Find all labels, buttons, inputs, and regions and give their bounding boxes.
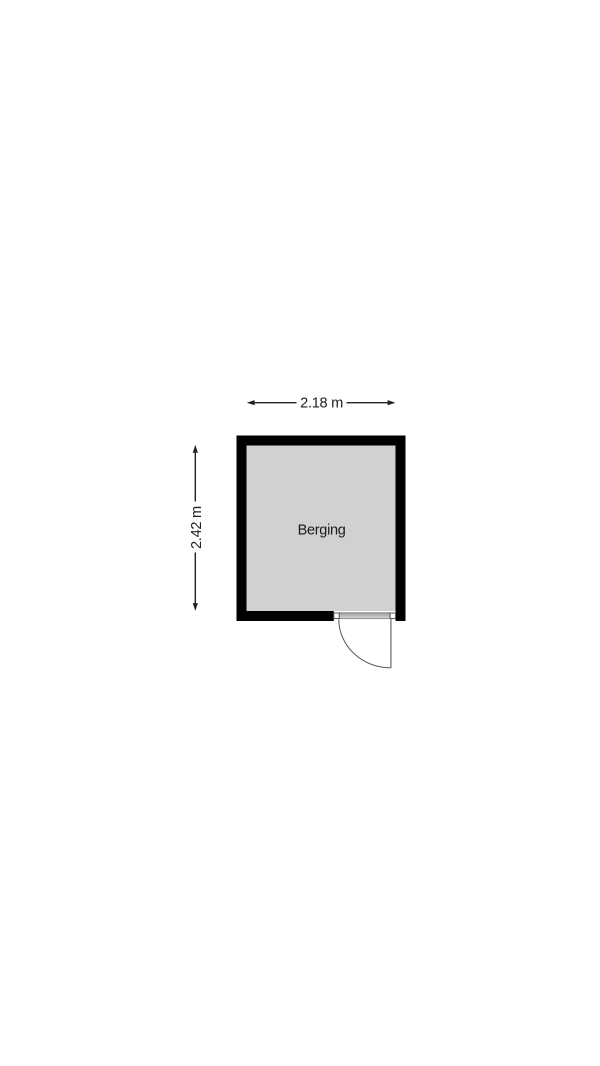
- svg-text:Berging: Berging: [298, 523, 346, 539]
- svg-text:2.18 m: 2.18 m: [300, 396, 343, 412]
- svg-text:2.42 m: 2.42 m: [189, 506, 205, 549]
